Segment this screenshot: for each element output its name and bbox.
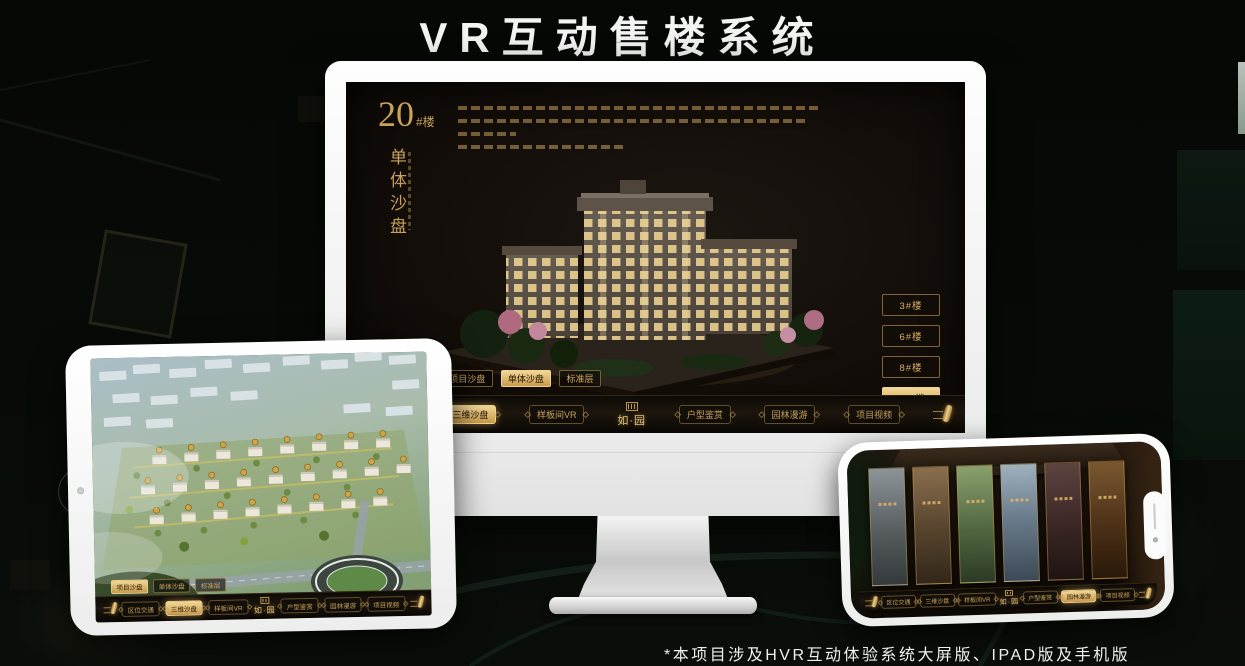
nav-item-3d-sandbox[interactable]: 三维沙盘 xyxy=(920,593,955,608)
building-number-suffix: #楼 xyxy=(416,115,435,129)
building-number: 20 xyxy=(378,94,414,134)
monitor-base xyxy=(549,597,757,614)
gallery-panel[interactable] xyxy=(868,467,908,586)
vertical-subtitle-decor xyxy=(408,152,411,230)
vertical-title: 单体沙盘 xyxy=(384,148,409,240)
phone-screen: 区位交通 三维沙盘 样板间VR 如·园 户型鉴赏 园林漫游 项目视频 xyxy=(846,441,1165,619)
panel-label-decor xyxy=(1098,496,1116,500)
gallery-panel[interactable] xyxy=(956,464,996,583)
panel-label-decor xyxy=(966,500,984,504)
subtab-project-sandbox[interactable]: 项目沙盘 xyxy=(111,580,148,594)
phone-notch xyxy=(1143,491,1167,560)
gallery-panel[interactable] xyxy=(1000,463,1040,582)
subtab-single-sandbox[interactable]: 单体沙盘 xyxy=(153,579,190,593)
nav-item-project-video[interactable]: 项目视频 xyxy=(848,405,900,424)
scroll-icon[interactable] xyxy=(410,598,423,609)
seal-icon xyxy=(260,597,269,604)
camera-icon xyxy=(1153,537,1158,542)
panel-label-decor xyxy=(1054,497,1072,501)
nav-item-3d-sandbox[interactable]: 三维沙盘 xyxy=(165,600,203,616)
nav-item-showroom-vr[interactable]: 样板间VR xyxy=(958,592,996,607)
nav-item-showroom-vr[interactable]: 样板间VR xyxy=(208,599,249,615)
panel-label-decor xyxy=(1010,498,1028,502)
subtab-standard-floor[interactable]: 标准层 xyxy=(559,370,601,387)
seal-icon xyxy=(626,402,638,411)
description-line xyxy=(458,132,516,136)
gallery-panel[interactable] xyxy=(1044,462,1084,581)
brand-logo: 如·园 xyxy=(617,402,646,428)
brand-logo: 如·园 xyxy=(999,590,1019,608)
monitor-subtabs: 项目沙盘 单体沙盘 标准层 xyxy=(442,370,601,387)
subtab-standard-floor[interactable]: 标准层 xyxy=(195,578,226,592)
nav-item-project-video[interactable]: 项目视频 xyxy=(367,596,405,612)
description-line xyxy=(458,145,626,149)
nav-item-showroom-vr[interactable]: 样板间VR xyxy=(529,405,584,424)
brand-logo: 如·园 xyxy=(254,597,276,616)
floor-button-group: 3#楼 6#楼 8#楼 20#楼 xyxy=(882,294,940,409)
ipad-tablet: 项目沙盘 单体沙盘 标准层 区位交通 三维沙盘 样板间VR 如·园 户型鉴赏 园… xyxy=(65,338,457,636)
footnote-text: *本项目涉及HVR互动体验系统大屏版、IPAD版及手机版 xyxy=(664,641,1130,665)
gallery-panel[interactable] xyxy=(1088,460,1128,579)
description-text xyxy=(458,106,818,158)
floor-button-3[interactable]: 3#楼 xyxy=(882,294,940,316)
gallery-panels xyxy=(868,460,1128,586)
gallery-panel[interactable] xyxy=(912,466,952,585)
nav-item-floorplan[interactable]: 户型鉴赏 xyxy=(1022,590,1057,605)
scroll-icon[interactable] xyxy=(103,604,116,615)
nav-item-garden-roam[interactable]: 园林漫游 xyxy=(764,405,816,424)
subtab-single-sandbox[interactable]: 单体沙盘 xyxy=(501,370,552,387)
speaker-icon xyxy=(1153,503,1156,529)
building-title: 20#楼 xyxy=(378,96,435,132)
panel-label-decor xyxy=(922,501,940,505)
nav-item-floorplan[interactable]: 户型鉴赏 xyxy=(281,598,319,614)
floor-button-8[interactable]: 8#楼 xyxy=(882,356,940,378)
nav-item-garden-roam[interactable]: 园林漫游 xyxy=(324,597,362,613)
scroll-icon[interactable] xyxy=(1139,589,1151,599)
panel-label-decor xyxy=(878,502,896,506)
nav-item-location[interactable]: 区位交通 xyxy=(881,595,916,610)
monitor-stand xyxy=(578,516,728,599)
seal-icon xyxy=(1005,590,1013,596)
nav-item-location[interactable]: 区位交通 xyxy=(122,601,160,617)
nav-item-project-video[interactable]: 项目视频 xyxy=(1100,588,1135,603)
description-line xyxy=(458,106,818,110)
scroll-icon[interactable] xyxy=(865,598,877,608)
camera-icon xyxy=(77,487,84,494)
floor-button-6[interactable]: 6#楼 xyxy=(882,325,940,347)
nav-item-garden-roam[interactable]: 园林漫游 xyxy=(1061,589,1096,604)
ipad-subtabs: 项目沙盘 单体沙盘 标准层 xyxy=(111,578,226,594)
nav-item-floorplan[interactable]: 户型鉴赏 xyxy=(679,405,731,424)
smartphone: 区位交通 三维沙盘 样板间VR 如·园 户型鉴赏 园林漫游 项目视频 xyxy=(837,433,1175,627)
page-title: VR互动售楼系统 xyxy=(0,4,1245,65)
scroll-icon[interactable] xyxy=(933,407,951,422)
description-line xyxy=(458,119,806,123)
poster-canvas: VR互动售楼系统 20#楼 单体沙盘 xyxy=(0,0,1245,666)
ipad-screen[interactable]: 项目沙盘 单体沙盘 标准层 区位交通 三维沙盘 样板间VR 如·园 户型鉴赏 园… xyxy=(90,352,431,623)
